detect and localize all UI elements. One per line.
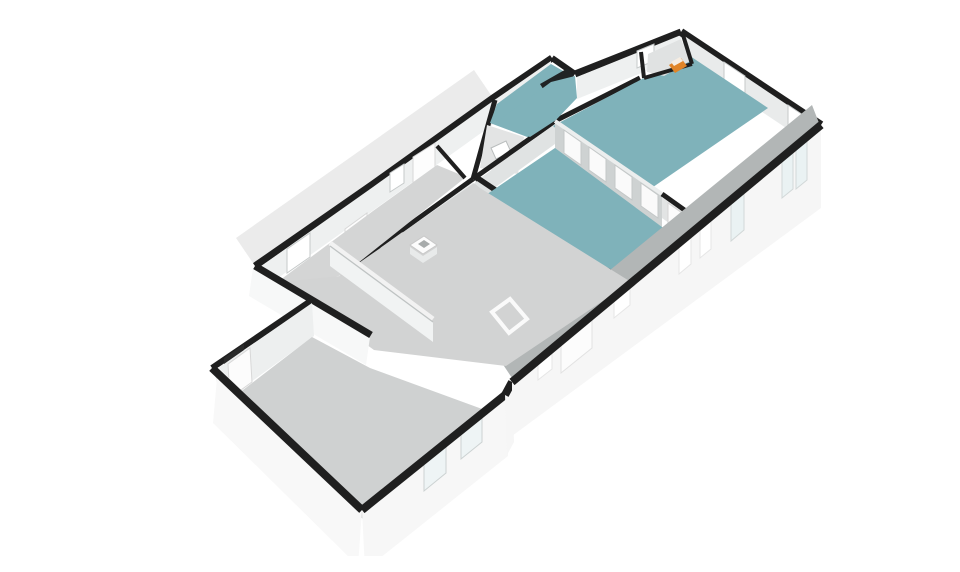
floor-plan-3d-view	[40, 16, 960, 556]
floor-plan-canvas	[40, 16, 960, 556]
